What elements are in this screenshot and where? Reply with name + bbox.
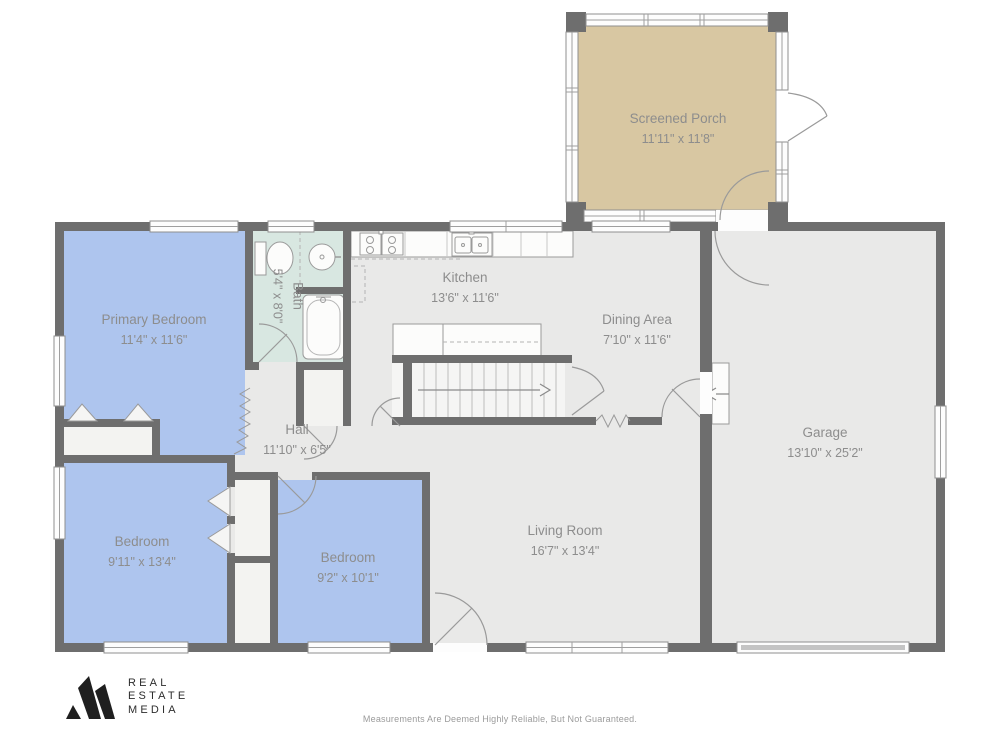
room-name: Hall [263, 421, 331, 439]
room-dimensions: 11'10" x 6'5" [263, 442, 331, 458]
porch-post [566, 202, 586, 222]
room-name: Screened Porch [630, 110, 727, 128]
porch-post [768, 202, 788, 222]
porch-post [768, 12, 788, 32]
room-dimensions: 11'4" x 11'6" [101, 332, 206, 348]
room-name: Garage [787, 424, 863, 442]
hall-closet-area [304, 370, 343, 426]
room-label-bath: Bath 5'4" x 8'0" [270, 269, 307, 324]
room-name: Bath [289, 269, 307, 324]
room-name: Bedroom [317, 549, 379, 567]
room-name: Primary Bedroom [101, 311, 206, 329]
room-dimensions: 11'11" x 11'8" [630, 131, 727, 147]
room-label-screened-porch: Screened Porch 11'11" x 11'8" [630, 110, 727, 147]
room-dimensions: 13'10" x 25'2" [787, 445, 863, 461]
disclaimer-text: Measurements Are Deemed Highly Reliable,… [0, 714, 1000, 724]
room-dimensions: 16'7" x 13'4" [527, 543, 602, 559]
logo-line: REAL [128, 677, 188, 691]
room-label-bedroom-left: Bedroom 9'11" x 13'4" [108, 533, 176, 570]
garage-divider-wall [700, 222, 712, 652]
logo-line: ESTATE [128, 690, 188, 704]
room-dimensions: 5'4" x 8'0" [270, 269, 286, 324]
room-dimensions: 7'10" x 11'6" [602, 332, 672, 348]
room-name: Dining Area [602, 311, 672, 329]
room-dimensions: 9'2" x 10'1" [317, 570, 379, 586]
room-label-bedroom-right: Bedroom 9'2" x 10'1" [317, 549, 379, 586]
garage-door [737, 642, 909, 653]
room-label-hall: Hall 11'10" x 6'5" [263, 421, 331, 458]
room-label-living-room: Living Room 16'7" x 13'4" [527, 522, 602, 559]
primary-closet-area [63, 427, 152, 455]
room-name: Living Room [527, 522, 602, 540]
floor-plan-drawing [0, 0, 1000, 750]
room-label-garage: Garage 13'10" x 25'2" [787, 424, 863, 461]
porch-post [566, 12, 586, 32]
logo-wordmark: REAL ESTATE MEDIA [128, 677, 188, 718]
floor-plan-page: Screened Porch 11'11" x 11'8" Kitchen 13… [0, 0, 1000, 750]
room-dimensions: 9'11" x 13'4" [108, 554, 176, 570]
room-label-dining-area: Dining Area 7'10" x 11'6" [602, 311, 672, 348]
room-label-primary-bedroom: Primary Bedroom 11'4" x 11'6" [101, 311, 206, 348]
room-name: Kitchen [431, 269, 499, 287]
room-dimensions: 13'6" x 11'6" [431, 290, 499, 306]
bathtub [303, 295, 344, 359]
room-label-kitchen: Kitchen 13'6" x 11'6" [431, 269, 499, 306]
room-name: Bedroom [108, 533, 176, 551]
